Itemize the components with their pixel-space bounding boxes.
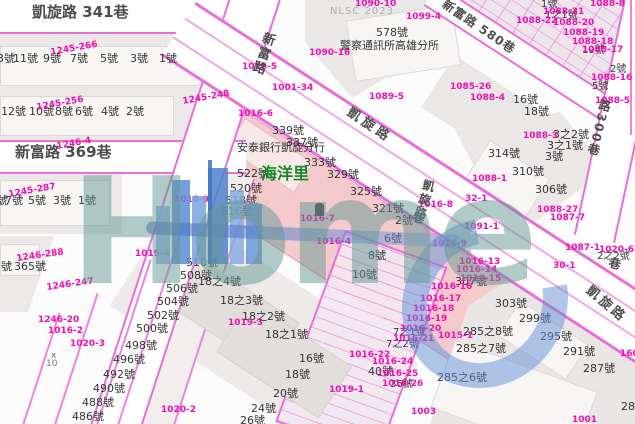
house-number-label: 3號 — [53, 195, 71, 206]
lot-number-label: 1091-1 — [464, 223, 499, 232]
lot-number-label: 1001 — [572, 416, 597, 424]
house-number-label: 28 — [621, 401, 635, 412]
lot-number-label: 1016-16 — [431, 283, 472, 292]
street-name-label: 凱旋路 341巷 — [32, 5, 129, 20]
lot-number-label: 1016-24 — [372, 358, 413, 367]
lot-number-label: 1016-7 — [300, 215, 335, 224]
house-number-label: 285之7號 — [456, 343, 506, 354]
lot-number-label: 1099-4 — [406, 13, 441, 22]
lot-number-label: 1088-20 — [553, 19, 594, 28]
lot-number-label: 1016-18 — [413, 305, 454, 314]
house-number-label: 506號 — [166, 283, 198, 294]
house-number-label: 502號 — [147, 310, 179, 321]
house-number-label: 310號 — [512, 166, 544, 177]
house-number-label: 3號 — [545, 151, 563, 162]
house-number-label: 4號 — [101, 106, 119, 117]
house-number-label: 329號 — [327, 169, 359, 180]
house-number-label: 287號 — [583, 363, 615, 374]
house-number-label: 490號 — [93, 383, 125, 394]
house-number-label: 5號 — [28, 195, 46, 206]
lot-number-label: 1018-9 — [174, 196, 209, 205]
house-number-label: 498號 — [125, 340, 157, 351]
lot-number-label: 1085-26 — [450, 83, 491, 92]
house-number-label: 20號 — [273, 388, 298, 399]
house-number-label: 492號 — [103, 369, 135, 380]
lot-number-label: 1088-22 — [516, 17, 557, 26]
lot-number-label: 1089-5 — [369, 93, 404, 102]
lot-number-label: 1088-8 — [590, 0, 625, 9]
lot-number-label: 1016-4 — [316, 238, 351, 247]
house-number-label: 5號 — [100, 53, 118, 64]
house-number-label: 306號 — [535, 184, 567, 195]
lot-number-label: 1246-20 — [38, 316, 79, 325]
place-name-label: 警察通訊所高雄分所 — [340, 40, 439, 51]
lot-number-label: 1016-20 — [400, 325, 441, 334]
place-name-label: 安泰銀行凱旋分行 — [237, 142, 325, 153]
lot-number-label: 32-1 — [465, 195, 488, 204]
lot-number-label: 1016-25 — [377, 370, 418, 379]
house-number-label: 285之6號 — [437, 372, 487, 383]
lot-number-label: 1090-10 — [355, 0, 396, 9]
lot-number-label: 1087-7 — [550, 214, 585, 223]
house-number-label: 1號 — [159, 53, 177, 64]
house-number-label: 299號 — [519, 313, 551, 324]
lot-number-label: 1019-3 — [228, 319, 263, 328]
lot-number-label: 1088-1 — [472, 175, 507, 184]
house-number-label: 314號 — [488, 148, 520, 159]
lot-number-label: 1088-3 — [523, 132, 558, 141]
house-number-label: 6號 — [384, 233, 402, 244]
lot-number-label: 1088-16 — [591, 74, 632, 83]
lot-number-label: 1019-4 — [135, 250, 170, 259]
lot-number-label: 1020-63 — [599, 246, 635, 255]
lot-number-label: 1016-19 — [406, 315, 447, 324]
house-number-label: 520號 — [230, 183, 262, 194]
house-number-label: 496號 — [113, 354, 145, 365]
house-number-label: 6號 — [75, 106, 93, 117]
house-number-label: 8號 — [368, 250, 386, 261]
lot-number-label: 1087-1 — [565, 244, 600, 253]
house-number-label: 325號 — [350, 186, 382, 197]
house-number-label: 291號 — [563, 346, 595, 357]
place-name-label: 10 — [46, 360, 57, 369]
place-name-label: 海洋里 — [261, 166, 309, 182]
lot-number-label: 1088-4 — [470, 94, 505, 103]
street-name-label: 新富路 369巷 — [15, 145, 112, 160]
house-number-label: 295號 — [540, 331, 572, 342]
house-number-label: 18號 — [524, 106, 549, 117]
house-number-label: 12號 — [1, 106, 26, 117]
house-number-label: 18之4號 — [198, 276, 241, 287]
house-number-label: 16號 — [513, 94, 538, 105]
house-number-label: 16號 — [299, 353, 324, 364]
lot-number-label: 1016-2 — [48, 327, 83, 336]
lot-number-label: 1016-17 — [420, 295, 461, 304]
street-name-label: 巷 — [410, 210, 425, 227]
lot-number-label: 1003 — [411, 408, 436, 417]
house-number-label: 5號 — [592, 82, 608, 92]
house-number-label: 500號 — [136, 323, 168, 334]
lot-number-label: 30-1 — [553, 262, 576, 271]
house-number-label: 488號 — [82, 397, 114, 408]
lot-number-label: 1088-17 — [582, 46, 623, 55]
poi-marker-icon — [315, 203, 324, 216]
lot-number-label: 1020-3 — [70, 340, 105, 349]
house-number-label: 516號 — [221, 206, 253, 217]
house-number-label: 18號 — [285, 369, 310, 380]
cadastral-line — [630, 0, 632, 135]
lot-number-label: 1001-34 — [272, 84, 313, 93]
map-canvas[interactable]: 凱旋路 341巷新富路 369巷新富路凱旋路新富路 580巷路300巷凱旋路凱旋… — [0, 0, 635, 424]
street-name-label: 巷 — [607, 256, 622, 272]
house-number-label: 18之1號 — [265, 329, 308, 340]
lot-number-label: 1020-2 — [161, 406, 196, 415]
lot-number-label: 1016-21 — [393, 335, 434, 344]
lot-number-label: 1016-6 — [238, 110, 273, 119]
house-number-label: 5號 — [0, 261, 12, 272]
lot-number-label: 1019-1 — [329, 386, 364, 395]
house-number-label: 1號 — [78, 195, 96, 206]
house-number-label: 321號 — [372, 203, 404, 214]
lot-number-label: 1601 — [620, 350, 635, 359]
house-number-label: 578號 — [376, 27, 408, 38]
lot-number-label: 1246-247 — [46, 277, 94, 293]
lot-number-label: 1016-26 — [382, 380, 423, 389]
house-number-label: 18之3號 — [220, 295, 263, 306]
house-number-label: 510號 — [186, 257, 218, 268]
house-number-label: 303號 — [495, 298, 527, 309]
house-number-label: 7號 — [70, 53, 88, 64]
lot-number-label: 1015-1 — [438, 332, 473, 341]
house-number-label: 24號 — [251, 403, 276, 414]
house-number-label: 2號 — [126, 106, 144, 117]
house-number-label: 26號 — [240, 415, 265, 424]
house-number-label: 504號 — [157, 296, 189, 307]
house-number-label: 11號 — [13, 53, 38, 64]
house-number-label: 3號 — [130, 53, 148, 64]
house-number-label: 339號 — [272, 125, 304, 136]
house-number-label: 10號 — [352, 269, 377, 280]
house-number-label: 486號 — [72, 411, 104, 422]
lot-number-label: 1016-9 — [432, 240, 467, 249]
